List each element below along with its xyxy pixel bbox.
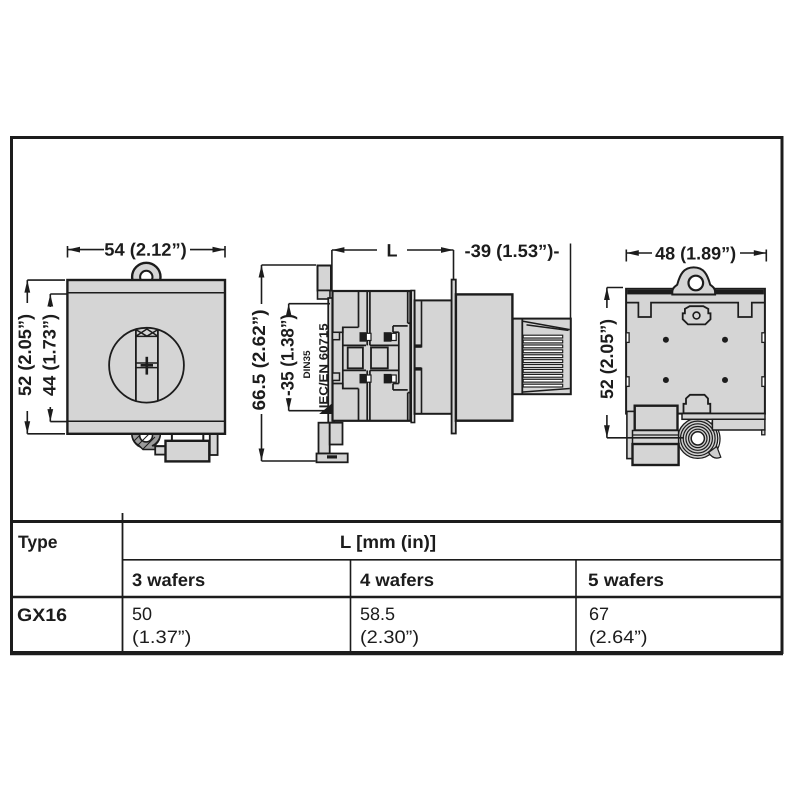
svg-text:(1.37”): (1.37”) bbox=[132, 627, 191, 647]
svg-text:54 (2.12”): 54 (2.12”) bbox=[104, 240, 187, 260]
svg-text:5 wafers: 5 wafers bbox=[588, 570, 664, 590]
svg-text:4 wafers: 4 wafers bbox=[360, 570, 434, 590]
svg-text:50: 50 bbox=[132, 604, 152, 624]
svg-text:L: L bbox=[386, 240, 397, 260]
svg-text:(2.64”): (2.64”) bbox=[589, 627, 648, 647]
svg-text:58.5: 58.5 bbox=[360, 604, 395, 624]
svg-text:3 wafers: 3 wafers bbox=[132, 570, 205, 590]
svg-text:L [mm (in)]: L [mm (in)] bbox=[340, 532, 436, 552]
svg-text:52 (2.05”): 52 (2.05”) bbox=[15, 314, 35, 396]
svg-text:44 (1.73”): 44 (1.73”) bbox=[40, 314, 60, 396]
svg-text:48 (1.89”): 48 (1.89”) bbox=[655, 243, 736, 263]
svg-text:52 (2.05”): 52 (2.05”) bbox=[597, 319, 617, 399]
svg-text:Type: Type bbox=[18, 532, 58, 552]
svg-text:67: 67 bbox=[589, 604, 609, 624]
svg-text:GX16: GX16 bbox=[17, 605, 67, 625]
svg-text:IEC/EN 60715: IEC/EN 60715 bbox=[316, 323, 330, 408]
svg-text:(2.30”): (2.30”) bbox=[360, 627, 419, 647]
svg-text:-39 (1.53”)-: -39 (1.53”)- bbox=[464, 241, 559, 261]
svg-text:-35 (1.38”): -35 (1.38”) bbox=[277, 314, 297, 396]
svg-text:DIN35: DIN35 bbox=[302, 350, 313, 379]
svg-text:66.5 (2.62”): 66.5 (2.62”) bbox=[249, 310, 269, 411]
